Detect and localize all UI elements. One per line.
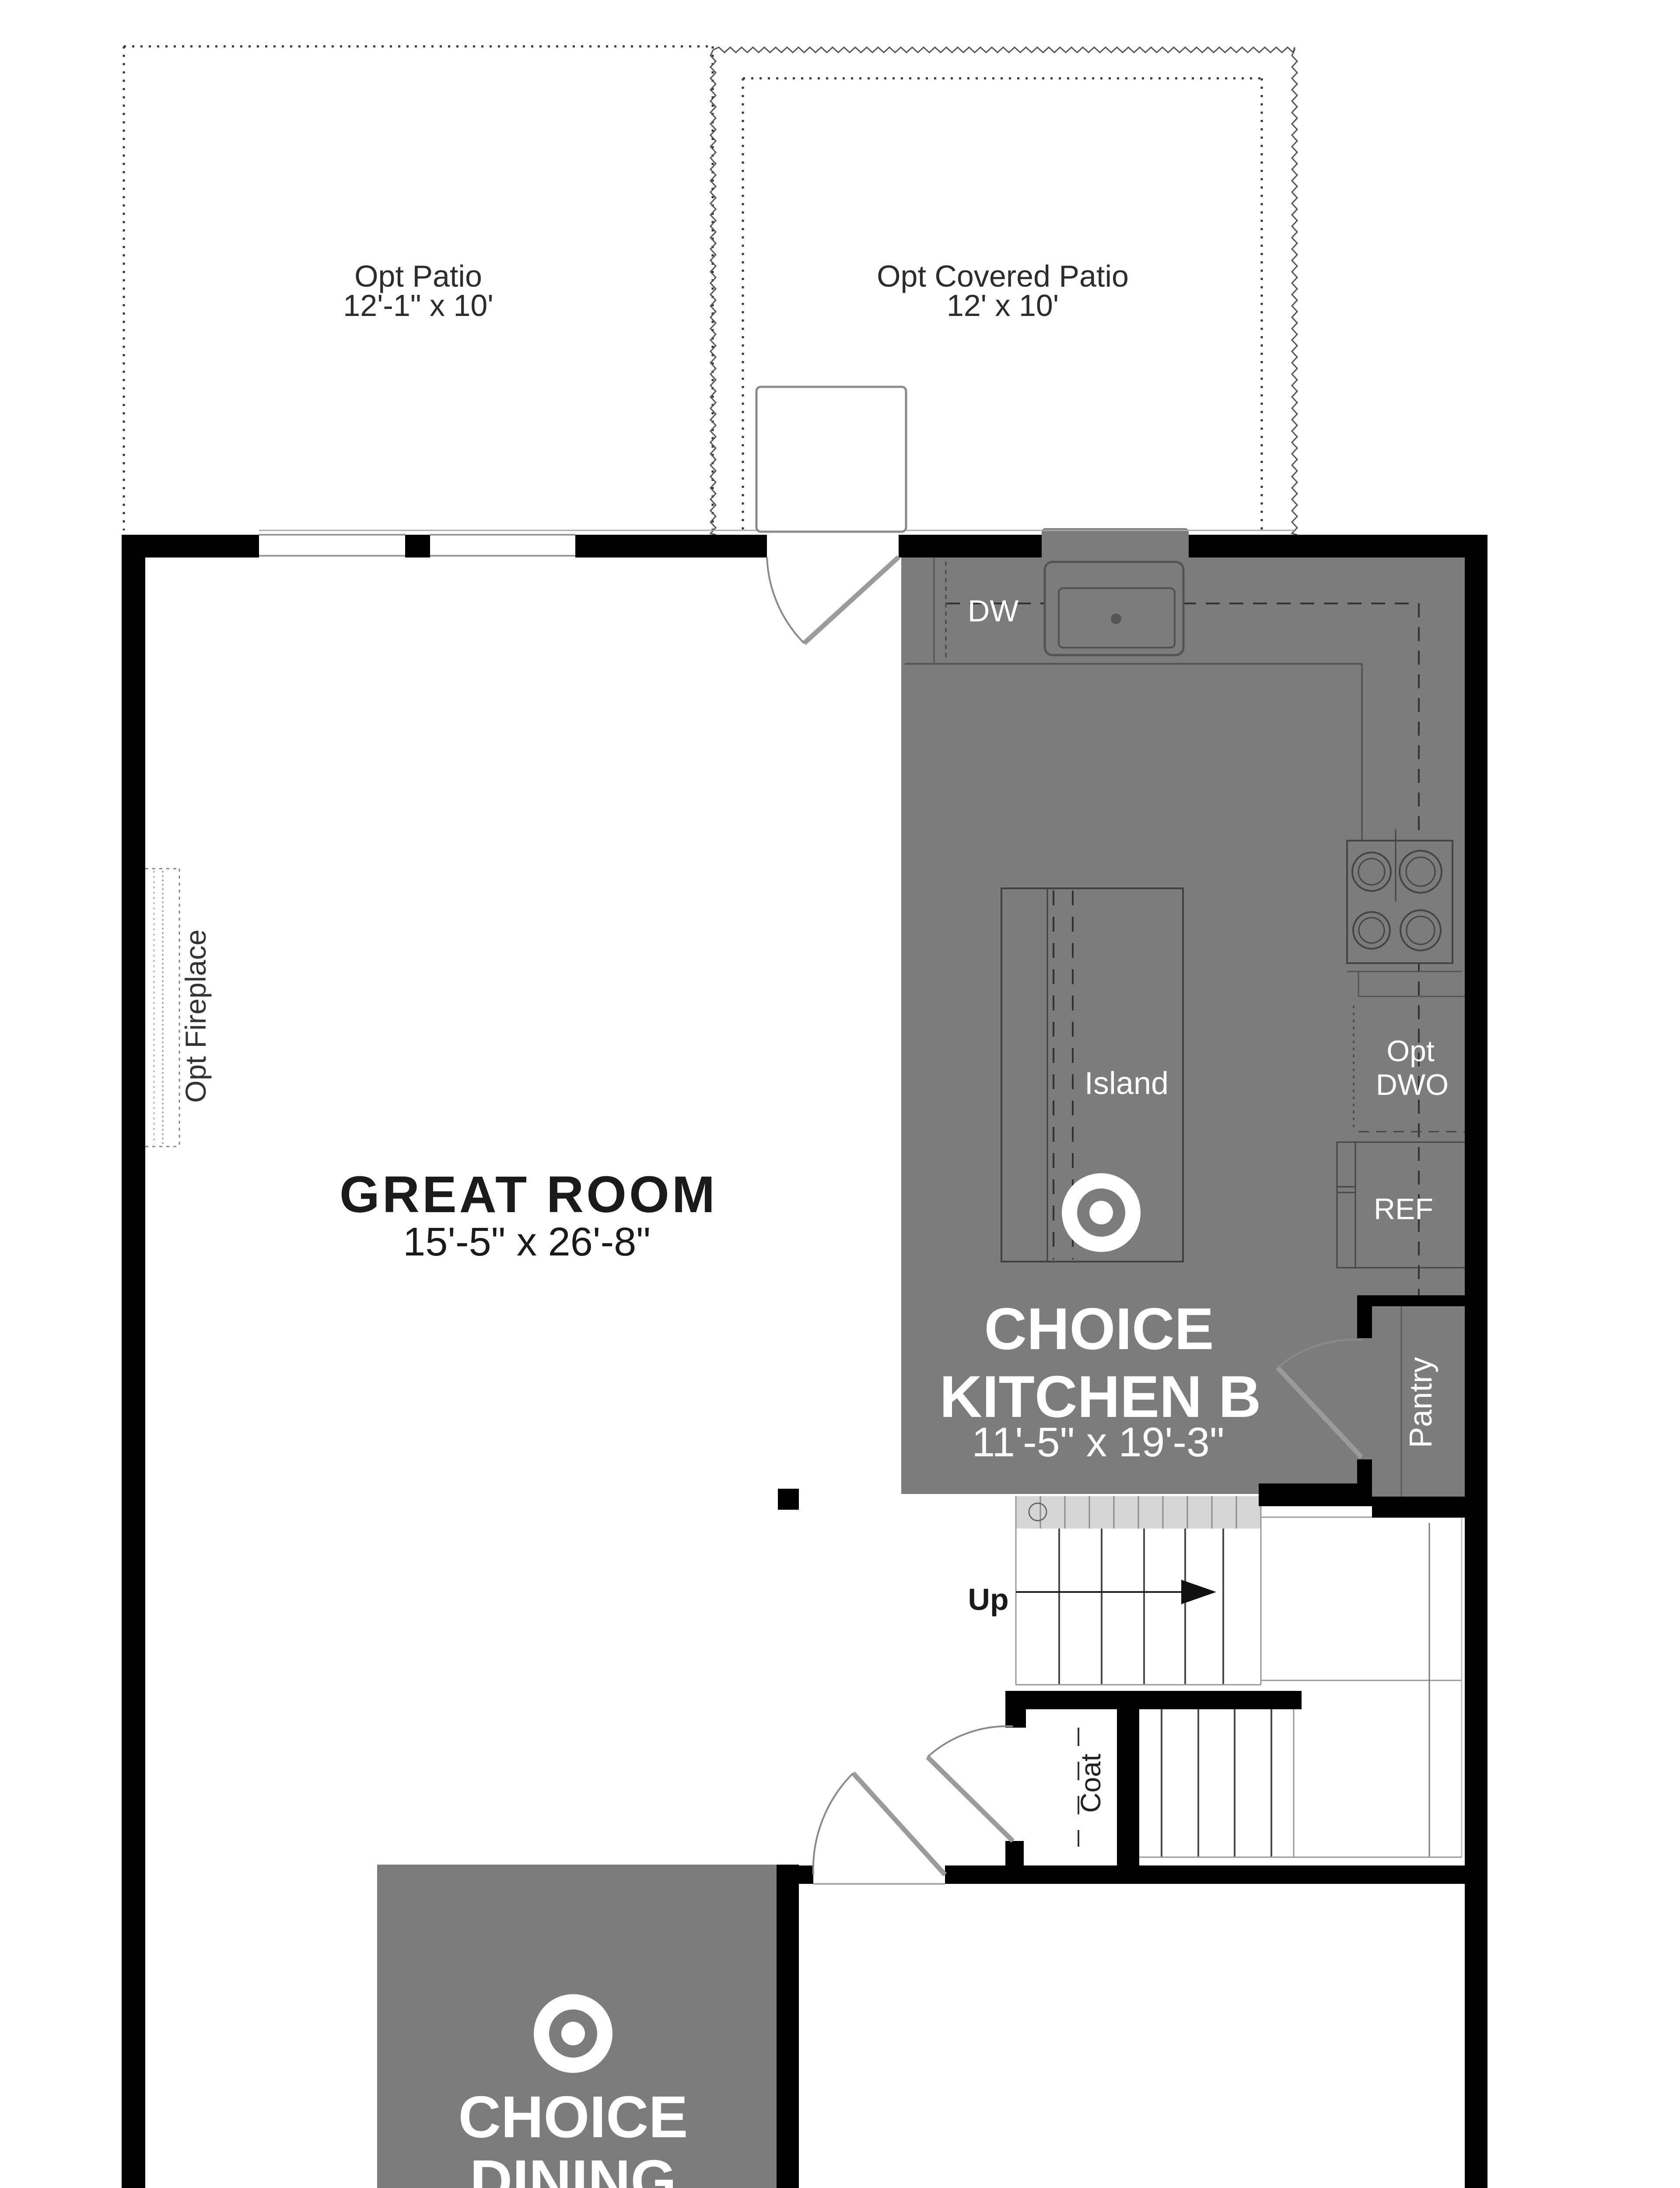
svg-text:15'-5" x 26'-8": 15'-5" x 26'-8" — [403, 1220, 651, 1264]
svg-text:Island: Island — [1085, 1066, 1169, 1101]
svg-text:CHOICE: CHOICE — [984, 1296, 1214, 1362]
svg-text:DW: DW — [968, 594, 1019, 628]
svg-text:Opt: Opt — [1386, 1034, 1435, 1068]
svg-text:Coat: Coat — [1075, 1753, 1106, 1813]
svg-text:Up: Up — [968, 1582, 1008, 1616]
svg-text:11'-5" x 19'-3": 11'-5" x 19'-3" — [972, 1419, 1224, 1466]
svg-text:DINING: DINING — [470, 2148, 677, 2188]
svg-text:12' x 10': 12' x 10' — [947, 288, 1059, 323]
svg-text:DWO: DWO — [1376, 1068, 1449, 1101]
svg-text:REF: REF — [1374, 1192, 1433, 1226]
svg-text:Opt Fireplace: Opt Fireplace — [179, 929, 212, 1103]
svg-text:Pantry: Pantry — [1403, 1357, 1438, 1448]
svg-text:12'-1" x 10': 12'-1" x 10' — [343, 288, 493, 323]
svg-text:CHOICE: CHOICE — [458, 2084, 688, 2150]
svg-text:GREAT ROOM: GREAT ROOM — [339, 1166, 717, 1224]
